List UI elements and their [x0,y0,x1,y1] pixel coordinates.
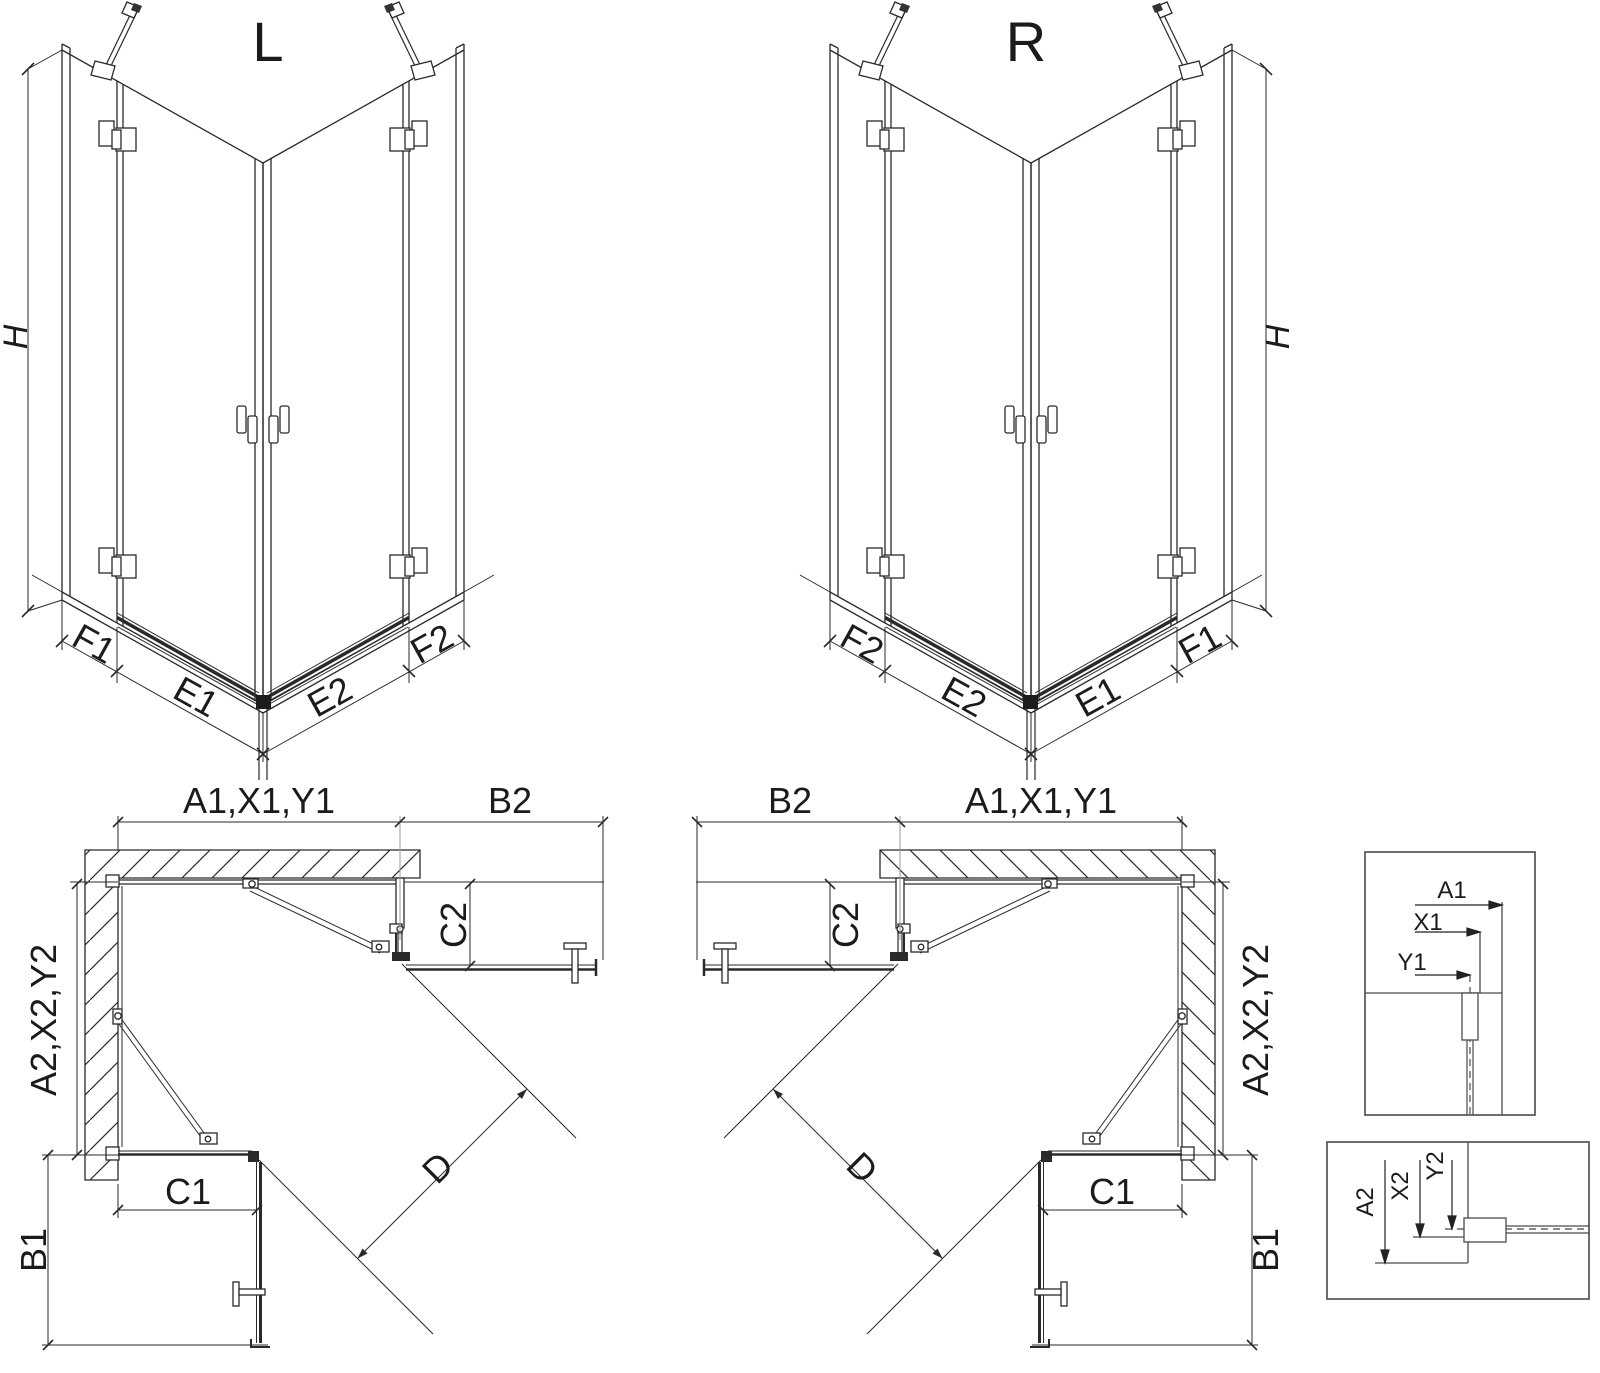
iso-view-left-drawing [10,0,550,810]
plan-right-dim-c1: C1 [1089,1174,1135,1210]
plan-right-dim-side-depth: A2,X2,Y2 [1238,944,1274,1096]
plan-right-dim-b1: B1 [1248,1228,1284,1272]
plan-view-left-drawing [30,790,650,1373]
plan-right-dim-b2: B2 [768,783,812,819]
iso-right-dim-h: H [1261,325,1295,350]
technical-drawing: L H F1 E1 E2 F2 R H F2 E2 E1 F1 A1,X1,Y1… [0,0,1600,1373]
iso-left-title: L [252,14,283,70]
iso-left-dim-h: H [0,325,33,350]
detail-width-label-a1: A1 [1437,879,1466,903]
plan-left-dim-c1: C1 [165,1174,211,1210]
plan-left-dim-b1: B1 [16,1228,52,1272]
plan-right-dim-top-width: A1,X1,Y1 [965,783,1117,819]
detail-depth-label-a2: A2 [1354,1187,1378,1216]
iso-view-right-drawing [744,0,1284,810]
plan-left-dim-b2: B2 [488,783,532,819]
detail-depth-label-y2: Y2 [1424,1151,1448,1180]
plan-right-dim-c2: C2 [828,902,864,948]
plan-left-dim-top-width: A1,X1,Y1 [183,783,335,819]
detail-width-label-y1: Y1 [1397,951,1426,975]
detail-width-label-x1: X1 [1413,911,1442,935]
plan-view-right-drawing [650,790,1270,1373]
plan-left-dim-c2: C2 [436,902,472,948]
plan-left-dim-side-depth: A2,X2,Y2 [26,944,62,1096]
detail-depth-label-x2: X2 [1389,1171,1413,1200]
iso-right-title: R [1006,14,1046,70]
detail-box-depth-drawing [1310,1130,1600,1310]
